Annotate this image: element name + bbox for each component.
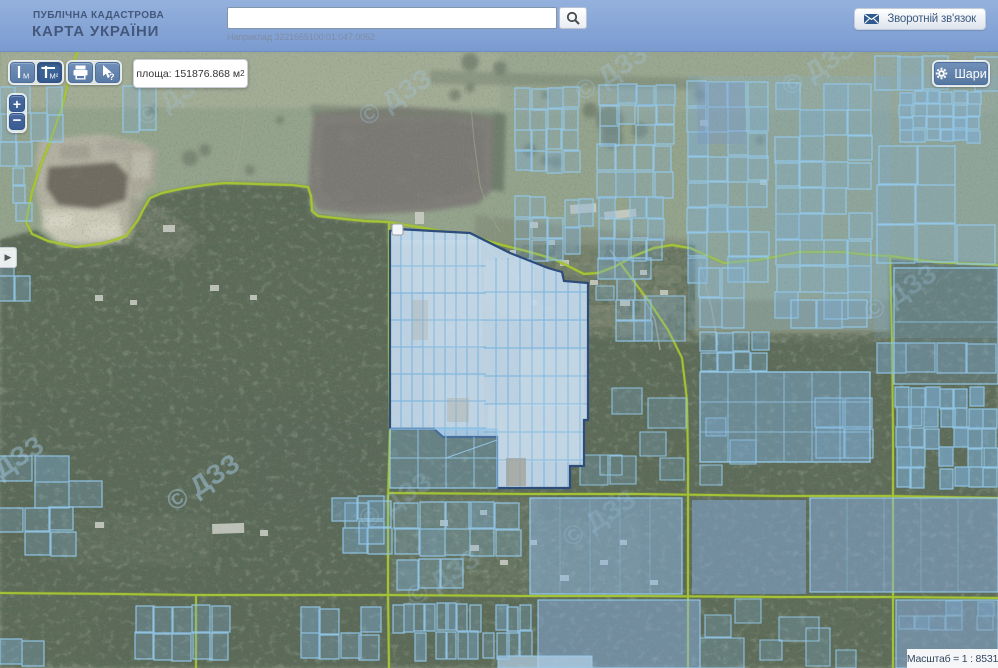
svg-text:М²: М² bbox=[50, 72, 59, 81]
svg-text:М: М bbox=[23, 72, 29, 81]
svg-text:?: ? bbox=[109, 72, 115, 82]
